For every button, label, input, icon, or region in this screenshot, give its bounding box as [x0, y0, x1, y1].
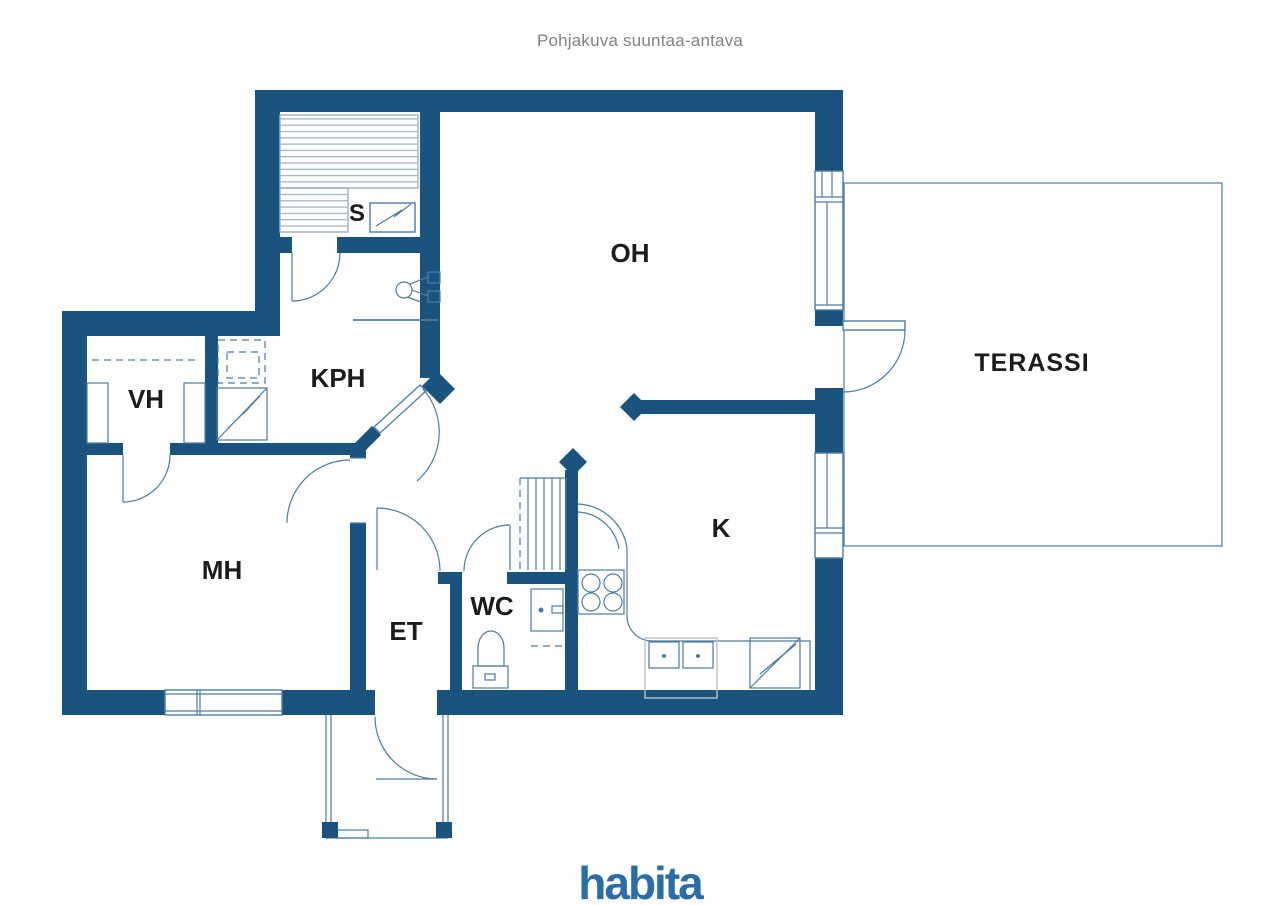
stove-icon [578, 570, 624, 614]
toilet-icon [473, 631, 508, 688]
entrance-porch [322, 715, 452, 838]
window-right-lower [815, 453, 843, 558]
terrace-door [815, 321, 905, 392]
room-label-closet: VH [128, 384, 164, 414]
habita-logo: habita [0, 856, 1280, 905]
hall-closet [520, 478, 566, 570]
floor-plan: S OH KPH VH MH ET WC K TERASSI [0, 0, 1280, 905]
room-label-bathroom: KPH [311, 363, 366, 393]
room-label-terrace: TERASSI [974, 349, 1089, 377]
room-label-kitchen: K [712, 513, 731, 543]
sauna-stove-icon [370, 203, 415, 232]
room-label-wc: WC [470, 591, 514, 621]
kitchen-sink-icon [645, 638, 717, 698]
entrance-hall-door [377, 508, 440, 571]
room-label-sauna: S [349, 200, 365, 227]
room-label-bedroom: MH [202, 555, 242, 585]
sauna-door [292, 253, 340, 301]
window-bedroom [165, 690, 282, 715]
water-heater-icon [217, 388, 267, 440]
washing-machine-icon [218, 340, 265, 383]
fridge-icon [750, 638, 800, 688]
room-label-entrance: ET [389, 616, 422, 646]
closet-door [123, 455, 170, 502]
wc-door [464, 525, 510, 571]
wc-sink-icon [531, 589, 565, 646]
room-label-living: OH [611, 238, 650, 268]
bedroom-door [287, 458, 366, 523]
interior-walls [80, 112, 843, 690]
front-door [375, 717, 437, 779]
bathroom-door [374, 385, 439, 481]
window-right-upper [815, 171, 843, 310]
floor-plan-page: Pohjakuva suuntaa-antava [0, 0, 1280, 905]
